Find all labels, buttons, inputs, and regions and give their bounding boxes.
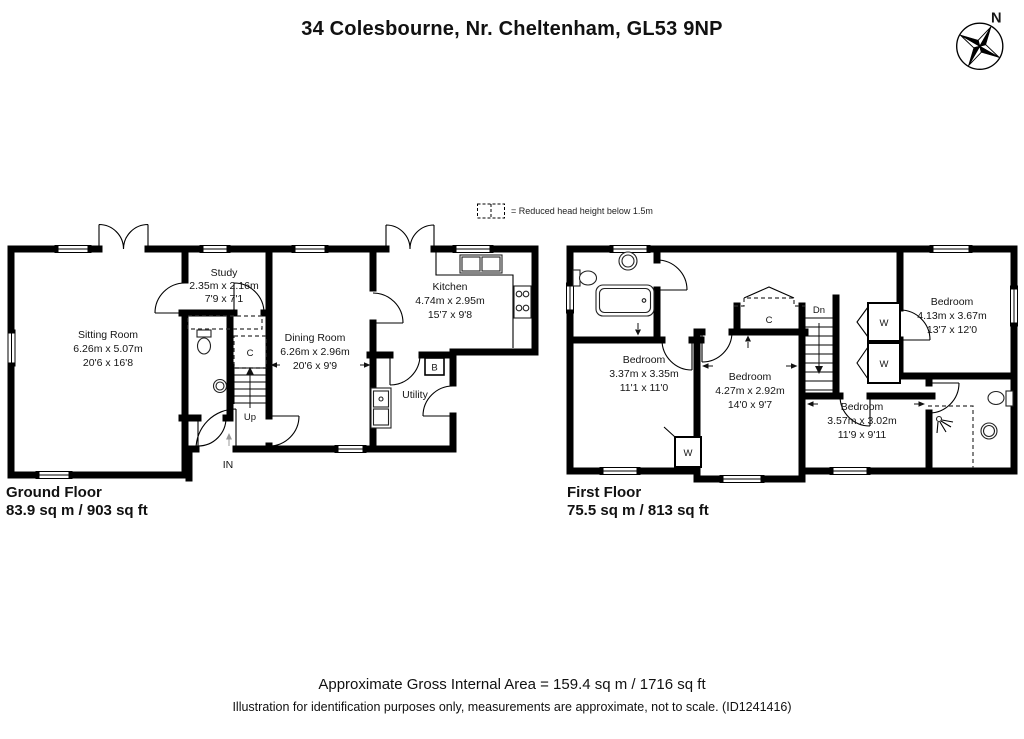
toilet-icon — [988, 391, 1013, 406]
bedroom2-label: Bedroom — [729, 371, 772, 383]
ff-cupboard-label: C — [766, 315, 773, 326]
reduced-head-height-icon — [476, 202, 506, 220]
bedroom2-metric: 4.27m x 2.92m — [715, 385, 785, 397]
stairs-down-label: Dn — [813, 305, 825, 316]
bedroom1-imperial: 11'1 x 11'0 — [620, 382, 669, 394]
first-floor-name: First Floor — [567, 484, 709, 502]
utility-label: Utility — [402, 389, 428, 401]
sitting-room-label: Sitting Room — [78, 329, 138, 341]
stairs-down-icon — [805, 318, 836, 390]
study-metric: 2.35m x 2.16m — [189, 280, 259, 292]
shower-icon — [937, 417, 954, 434]
legend: = Reduced head height below 1.5m — [476, 202, 653, 220]
bedroom1-metric: 3.37m x 3.35m — [609, 368, 679, 380]
gross-internal-area: Approximate Gross Internal Area = 159.4 … — [0, 676, 1024, 693]
ff-doors — [657, 260, 959, 426]
ground-floor-area: 83.9 sq m / 903 sq ft — [6, 502, 148, 520]
dining-room-label: Dining Room — [285, 332, 346, 344]
gf-doors — [99, 225, 453, 450]
bedroom4-imperial: 13'7 x 12'0 — [927, 324, 977, 336]
compass-rose: N — [946, 8, 1018, 80]
page-title: 34 Colesbourne, Nr. Cheltenham, GL53 9NP — [0, 18, 1024, 41]
bedroom3-label: Bedroom — [841, 401, 884, 413]
first-floor-plan: Bedroom 3.37m x 3.35m 11'1 x 11'0 Bedroo… — [562, 228, 1022, 490]
bedroom1-label: Bedroom — [623, 354, 666, 366]
reduced-head-height-area — [188, 316, 262, 329]
compass-north-label: N — [991, 11, 1002, 27]
toilet-icon — [197, 330, 211, 354]
wardrobe-label: W — [880, 318, 889, 329]
bedroom3-metric: 3.57m x 3.02m — [827, 415, 897, 427]
basin-icon — [214, 380, 227, 393]
ground-floor-name: Ground Floor — [6, 484, 148, 502]
sitting-room-metric: 6.26m x 5.07m — [73, 343, 143, 355]
bath-icon — [596, 285, 654, 316]
compass-star — [960, 27, 999, 66]
ff-cupboard — [734, 287, 805, 306]
cupboard-bifold-doors — [744, 287, 794, 298]
kitchen-metric: 4.74m x 2.95m — [415, 295, 485, 307]
hob-icon — [514, 286, 531, 318]
utility-sink-icon — [371, 388, 391, 428]
kitchen-sink-icon — [460, 255, 502, 273]
kitchen-imperial: 15'7 x 9'8 — [428, 309, 472, 321]
bedroom3-imperial: 11'9 x 9'11 — [838, 429, 887, 441]
entrance-in-label: IN — [223, 459, 234, 471]
sitting-room-imperial: 20'6 x 16'8 — [83, 357, 133, 369]
basin-icon — [619, 252, 637, 270]
kitchen-label: Kitchen — [432, 281, 467, 293]
bedroom4-label: Bedroom — [931, 296, 974, 308]
gf-labels: Sitting Room 6.26m x 5.07m 20'6 x 16'8 S… — [73, 267, 485, 471]
toilet-icon — [573, 270, 597, 286]
first-floor-area: 75.5 sq m / 813 sq ft — [567, 502, 709, 520]
ground-floor-caption: Ground Floor 83.9 sq m / 903 sq ft — [6, 484, 148, 520]
bedroom2-imperial: 14'0 x 9'7 — [728, 399, 772, 411]
wardrobe-label: W — [880, 359, 889, 370]
gf-fixtures — [197, 253, 531, 429]
stairs-up-icon — [234, 364, 269, 408]
gf-cupboard-label: C — [247, 348, 254, 359]
stairs-up-label: Up — [244, 412, 256, 423]
dining-room-metric: 6.26m x 2.96m — [280, 346, 350, 358]
first-floor-caption: First Floor 75.5 sq m / 813 sq ft — [567, 484, 709, 520]
study-label: Study — [211, 267, 239, 279]
study-imperial: 7'9 x 7'1 — [205, 293, 244, 305]
disclaimer: Illustration for identification purposes… — [0, 700, 1024, 714]
boiler-label: B — [431, 363, 437, 374]
ground-floor-plan: Sitting Room 6.26m x 5.07m 20'6 x 16'8 S… — [8, 202, 538, 490]
basin-icon — [981, 423, 997, 439]
bedroom4-metric: 4.13m x 3.67m — [917, 310, 987, 322]
shower-enclosure — [928, 406, 973, 468]
legend-text: = Reduced head height below 1.5m — [511, 206, 653, 216]
dining-room-imperial: 20'6 x 9'9 — [293, 360, 337, 372]
wardrobe-label: W — [684, 448, 693, 459]
